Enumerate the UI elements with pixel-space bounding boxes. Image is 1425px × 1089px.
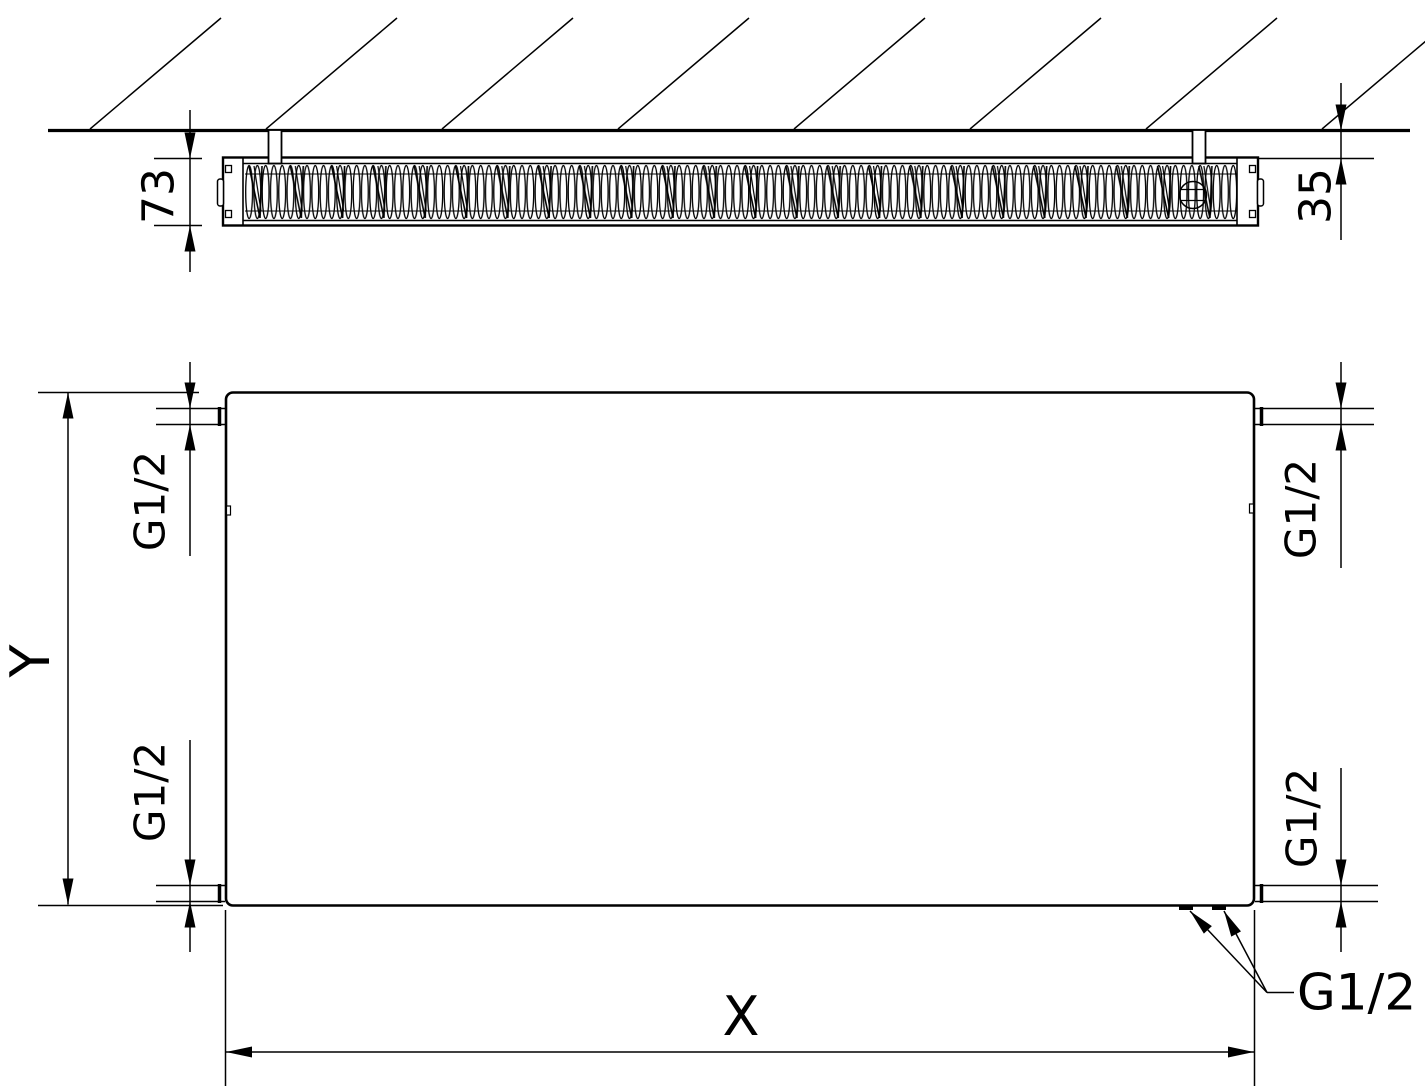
arrow-down-icon [1336,860,1347,886]
dimension-thread-top-right: G1/2 [1277,362,1347,568]
radiator-drawing: 73 35 [0,0,1425,1089]
connection-stub-top-right [1255,407,1374,426]
wall-hatching-icon [90,18,1425,129]
panel-edge-mark-left [227,506,231,515]
dimension-thread-top-left: G1/2 [126,362,196,556]
arrow-up-icon [185,226,196,252]
arrow-down-icon [185,860,196,886]
dimension-wall-clearance: 35 [1259,83,1374,240]
bottom-connection-left [1179,905,1193,910]
dimension-thread-bottom-left: G1/2 [126,740,196,952]
thread-label-bottom-right: G1/2 [1278,768,1327,868]
height-label: Y [0,644,62,679]
thread-label-top-right: G1/2 [1277,459,1326,559]
thread-label-bottom-left: G1/2 [126,742,175,842]
radiator-section-body [218,158,1264,226]
arrow-left-icon [226,1047,252,1058]
side-section-view: 73 35 [48,18,1425,272]
radiator-panel [226,393,1254,906]
arrow-down-icon [185,133,196,159]
wall-clearance-value: 35 [1290,168,1341,224]
arrow-up-icon [185,425,196,451]
arrow-down-icon [1336,105,1347,131]
mounting-bracket-right [1193,130,1206,164]
dimension-width-x: X [226,910,1255,1086]
dimension-thread-bottom-right: G1/2 [1278,768,1347,952]
arrow-right-icon [1228,1047,1254,1058]
depth-value: 73 [133,168,184,224]
technical-drawing-canvas: 73 35 [0,0,1425,1089]
arrow-down-icon [63,879,74,905]
dimension-depth: 73 [133,110,202,272]
arrow-down-icon [185,383,196,409]
convector-fins [245,164,1237,220]
width-label: X [723,985,760,1048]
leader-bottom-connections: G1/2 [1186,907,1416,1021]
arrow-upleft-icon [1219,908,1241,936]
arrow-down-icon [1336,383,1347,409]
thread-label-top-left: G1/2 [126,451,175,551]
arrow-up-icon [1336,425,1347,451]
mounting-bracket-left [269,130,282,164]
panel-edge-mark-right [1250,504,1254,513]
thread-label-bottom-connections: G1/2 [1297,964,1416,1022]
front-view: Y X G1/2 G1/2 G1/2 [0,362,1416,1086]
arrow-up-icon [1336,902,1347,928]
bottom-connection-right [1212,905,1226,910]
connection-stub-bottom-right [1255,884,1378,903]
arrow-up-icon [63,393,74,419]
